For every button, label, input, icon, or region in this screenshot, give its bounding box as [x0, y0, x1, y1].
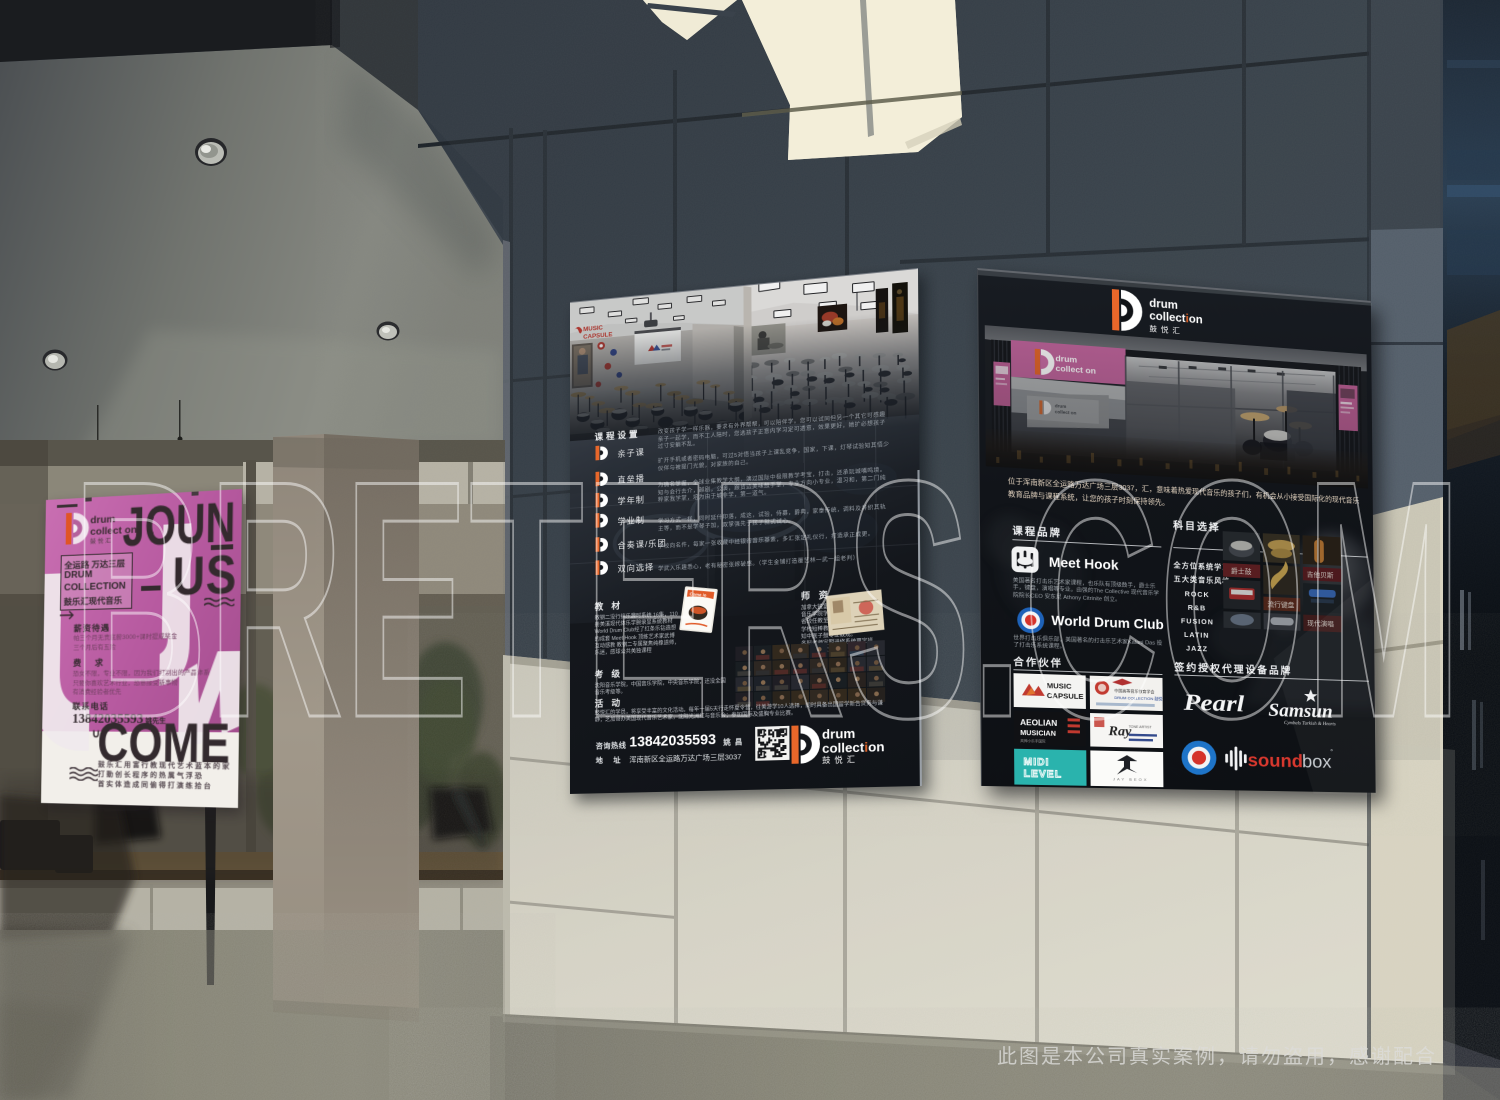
svg-text:AEOLIAN: AEOLIAN — [1020, 718, 1057, 728]
svg-text:鼓悦汇: 鼓悦汇 — [1149, 324, 1183, 336]
svg-text:Samsun: Samsun — [1268, 699, 1333, 722]
svg-text:鼓悦汇: 鼓悦汇 — [822, 754, 859, 765]
svg-text:JAY BEOX: JAY BEOX — [1113, 777, 1149, 782]
svg-text:MUSIC: MUSIC — [1047, 682, 1072, 691]
svg-text:drum: drum — [822, 727, 855, 742]
svg-text:collection: collection — [1149, 310, 1202, 327]
svg-text:Cymbals Turkish & Hearts: Cymbals Turkish & Hearts — [1284, 721, 1336, 728]
svg-text:MIDI: MIDI — [1023, 757, 1049, 768]
svg-text:TONE ARTIST: TONE ARTIST — [1129, 725, 1153, 729]
svg-text:LEVEL: LEVEL — [1024, 769, 1063, 781]
svg-text:CAPSULE: CAPSULE — [1047, 692, 1084, 701]
svg-text:box: box — [1302, 751, 1332, 772]
svg-text:风神小乐手国际: 风神小乐手国际 — [1020, 738, 1046, 743]
svg-text:sound: sound — [1248, 750, 1304, 771]
svg-text:MUSICIAN: MUSICIAN — [1020, 729, 1056, 738]
svg-text:°: ° — [1330, 748, 1333, 756]
